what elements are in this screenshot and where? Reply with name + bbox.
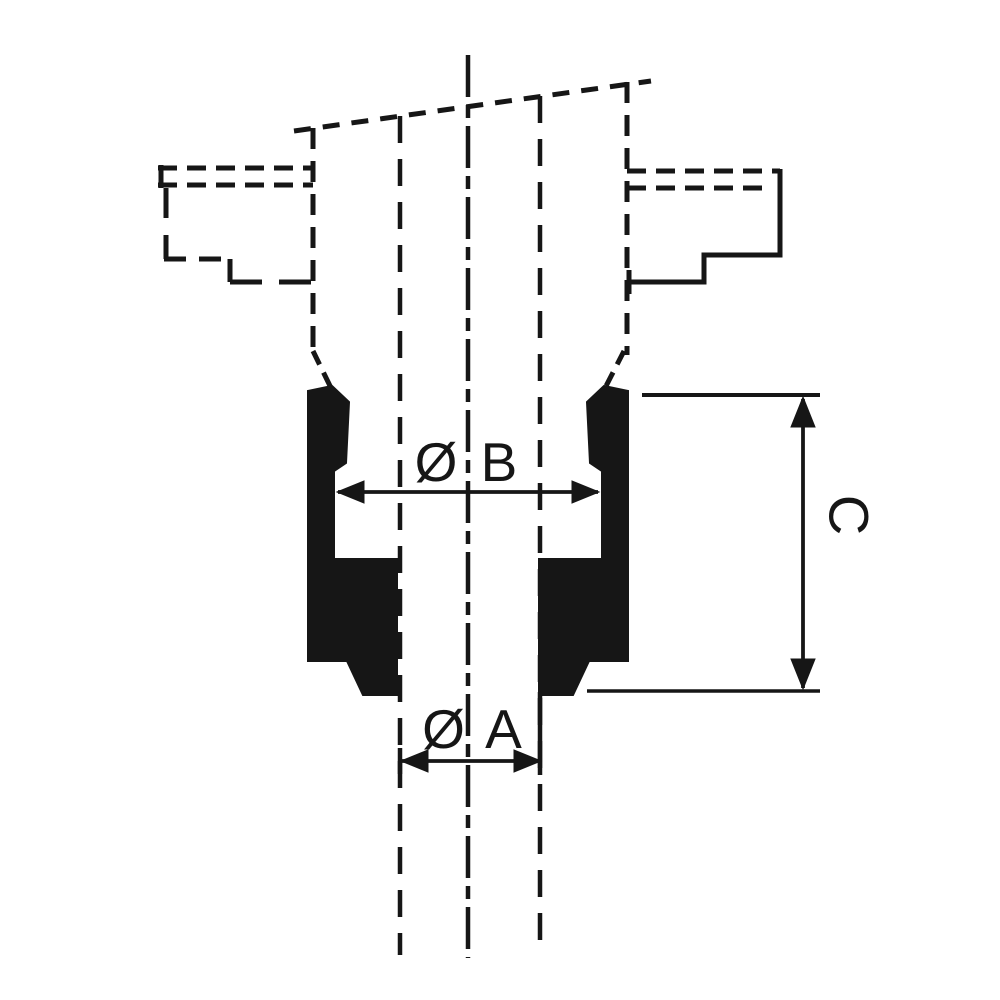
dim-diameter-a: Ø A — [400, 692, 541, 775]
dim-c-label: C — [817, 495, 880, 535]
dim-diameter-b: Ø B — [337, 431, 599, 503]
dim-b-arrow-right — [572, 481, 599, 503]
jaw-right-step-solid — [629, 186, 780, 282]
axis-and-bore-lines — [400, 55, 540, 958]
dim-b-label: Ø B — [415, 431, 522, 493]
chuck-jaw-left-outline — [158, 165, 313, 282]
dim-b-arrow-left — [337, 481, 364, 503]
part-left-taper — [313, 351, 332, 390]
part-cross-section-left — [308, 386, 397, 695]
dim-a-label: Ø A — [422, 698, 526, 760]
dim-c-arrow-down — [791, 659, 815, 689]
part-cross-section-right — [539, 386, 628, 695]
dim-c-arrow-up — [791, 397, 815, 427]
engineering-drawing: Ø B Ø A C — [0, 0, 1000, 1000]
part-right-taper — [604, 351, 624, 390]
dim-height-c: C — [587, 395, 880, 691]
top-sloped-line — [294, 81, 651, 131]
workpiece-hidden-outline — [294, 81, 651, 390]
drawing-canvas: Ø B Ø A C — [0, 0, 1000, 1000]
chuck-jaw-right-outline — [627, 169, 780, 294]
